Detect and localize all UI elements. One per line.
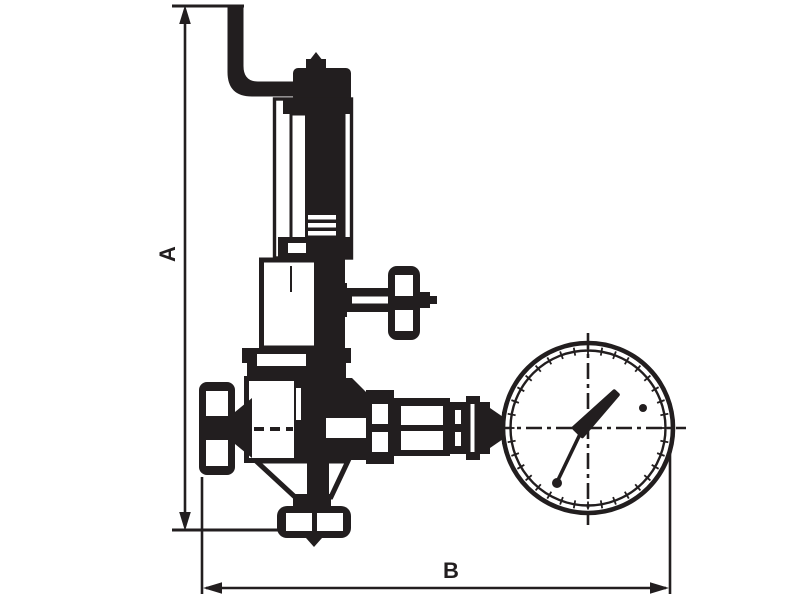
mid-flange — [242, 348, 351, 378]
bonnet-cap — [293, 68, 351, 102]
dimension-b-label: B — [443, 558, 459, 583]
valve-technical-drawing: A B — [0, 0, 800, 598]
union-cylinder-panel-bottom — [401, 431, 443, 450]
side-branch-pipe-slot — [352, 297, 388, 304]
union-cylinder-panel-top — [401, 406, 443, 425]
union-nut — [366, 390, 394, 464]
union-nut-slot-bottom — [372, 432, 388, 452]
discharge-pipe-elbow — [228, 6, 297, 97]
gauge-flange-slit — [471, 404, 475, 452]
valve-body-shoulder-right — [318, 378, 368, 394]
adjusting-screw-threads — [308, 215, 336, 236]
side-handwheel-slot-bottom — [395, 310, 413, 331]
discharge-pipe — [228, 6, 297, 97]
drawing-canvas: A B — [0, 0, 800, 598]
mounting-foot-slot-right — [317, 513, 343, 531]
side-branch-nut — [316, 283, 347, 317]
adjusting-screw — [305, 114, 344, 257]
side-handwheel-hub — [420, 292, 430, 308]
gauge-needle-tail-dot — [552, 478, 562, 488]
outlet-union — [318, 390, 512, 464]
pressure-gauge — [496, 333, 686, 525]
mounting-foot-slot-left — [286, 513, 312, 531]
base-assembly — [256, 458, 351, 547]
side-handwheel-hub-tip — [430, 296, 437, 304]
inlet-handwheel-slot-bottom — [206, 440, 228, 466]
valve-body-inner-slit — [296, 388, 301, 420]
mid-flange-slot — [257, 354, 306, 366]
bonnet-collar-slot — [288, 243, 306, 253]
union-ring-slot-top — [455, 410, 461, 424]
dimension-a-label: A — [155, 246, 180, 262]
union-nut-slot-top — [372, 404, 388, 424]
foot-pointer — [306, 538, 322, 547]
dimension-b-arrow-left — [203, 582, 222, 594]
dimension-b-arrow-right — [650, 582, 669, 594]
inlet-stem-cone — [235, 398, 252, 458]
outlet-nipple-bore — [326, 418, 366, 438]
union-ring — [450, 402, 466, 454]
cap-flange — [283, 99, 352, 114]
drain-funnel — [256, 461, 348, 497]
gauge-pin-dot — [639, 404, 647, 412]
dimension-a-arrow-up — [179, 5, 191, 24]
funnel-center-rod — [307, 458, 329, 500]
spring-housing — [262, 260, 317, 348]
dimension-a-arrow-down — [179, 512, 191, 531]
union-ring-slot-bottom — [455, 432, 461, 446]
gauge-flange-2 — [480, 402, 490, 454]
side-handwheel-slot-top — [395, 275, 413, 296]
inlet-handwheel-slot-top — [206, 391, 228, 416]
